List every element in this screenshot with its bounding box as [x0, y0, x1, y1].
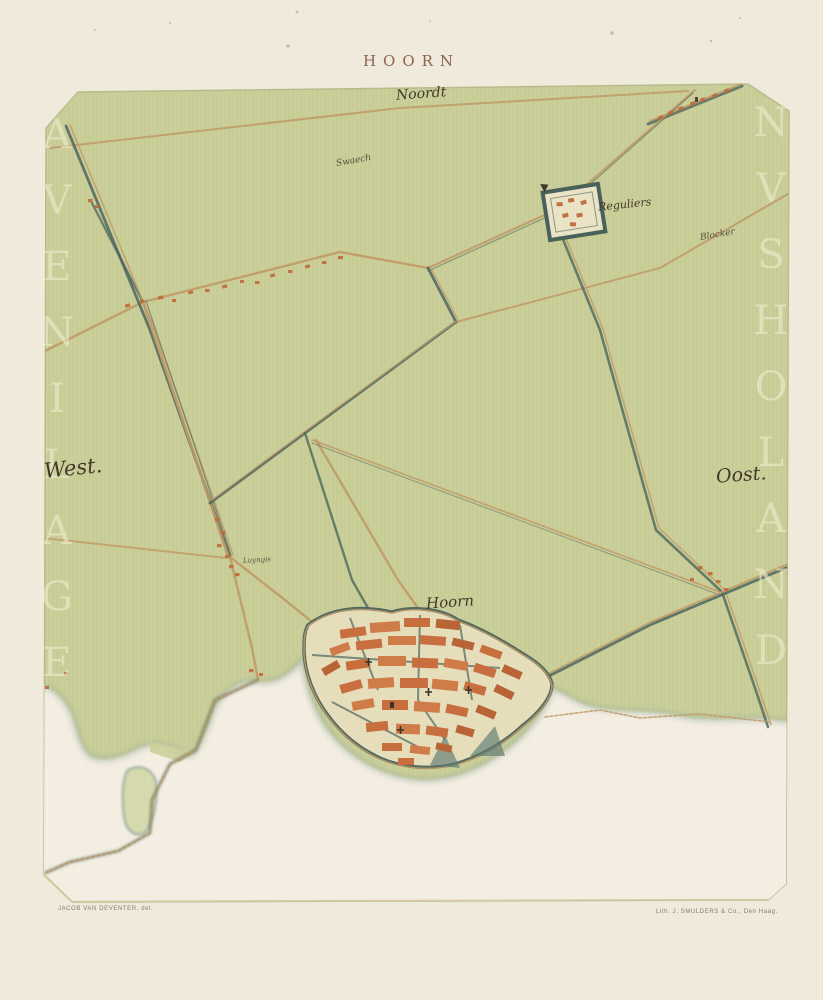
label-oost: Oost. [715, 462, 767, 487]
label-hoorn: Hoorn [425, 591, 474, 612]
paper-specks [94, 11, 741, 48]
label-hamlet: Luyngis [243, 555, 271, 564]
imprint-cartographer: JACOB VAN DEVENTER, del. [58, 906, 153, 912]
map-drawing [0, 0, 823, 1000]
imprint-lithographer: Lith. J. SMULDERS & Co., Den Haag. [656, 909, 778, 915]
scanned-atlas-page: AVENILAGE NVSHOLAND HOORN Noordt Swaech … [0, 0, 823, 1000]
page-title: HOORN [0, 52, 823, 70]
